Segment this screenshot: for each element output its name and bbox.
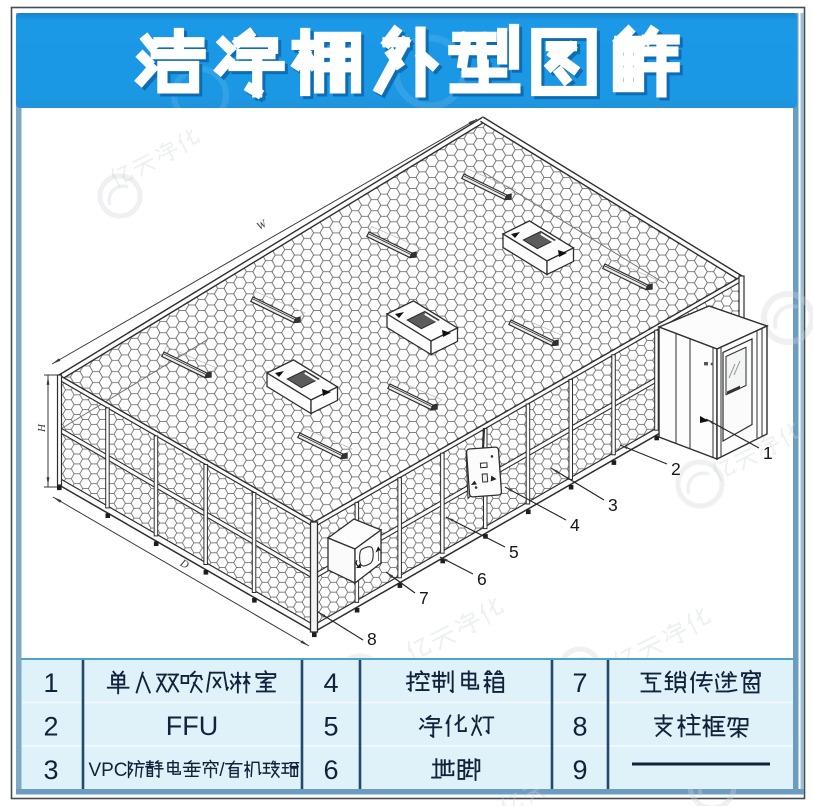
svg-text:7: 7 [419, 588, 429, 608]
svg-text:VPC: VPC [88, 760, 127, 781]
svg-text:4: 4 [323, 668, 338, 698]
svg-text:9: 9 [572, 755, 587, 785]
svg-text:5: 5 [323, 712, 338, 742]
svg-text:5: 5 [509, 542, 519, 562]
svg-text:8: 8 [572, 712, 587, 742]
svg-text:8: 8 [367, 629, 377, 649]
svg-text:2: 2 [43, 712, 58, 742]
svg-text:1: 1 [43, 668, 58, 698]
svg-text:/: / [219, 760, 225, 781]
svg-text:6: 6 [323, 755, 338, 785]
svg-text:H: H [36, 423, 48, 433]
svg-text:4: 4 [570, 515, 580, 535]
svg-text:3: 3 [43, 755, 58, 785]
svg-text:7: 7 [572, 668, 587, 698]
svg-text:3: 3 [608, 495, 618, 515]
svg-text:2: 2 [671, 459, 681, 479]
svg-text:6: 6 [477, 569, 487, 589]
svg-text:FFU: FFU [166, 711, 218, 741]
svg-text:1: 1 [763, 443, 773, 463]
